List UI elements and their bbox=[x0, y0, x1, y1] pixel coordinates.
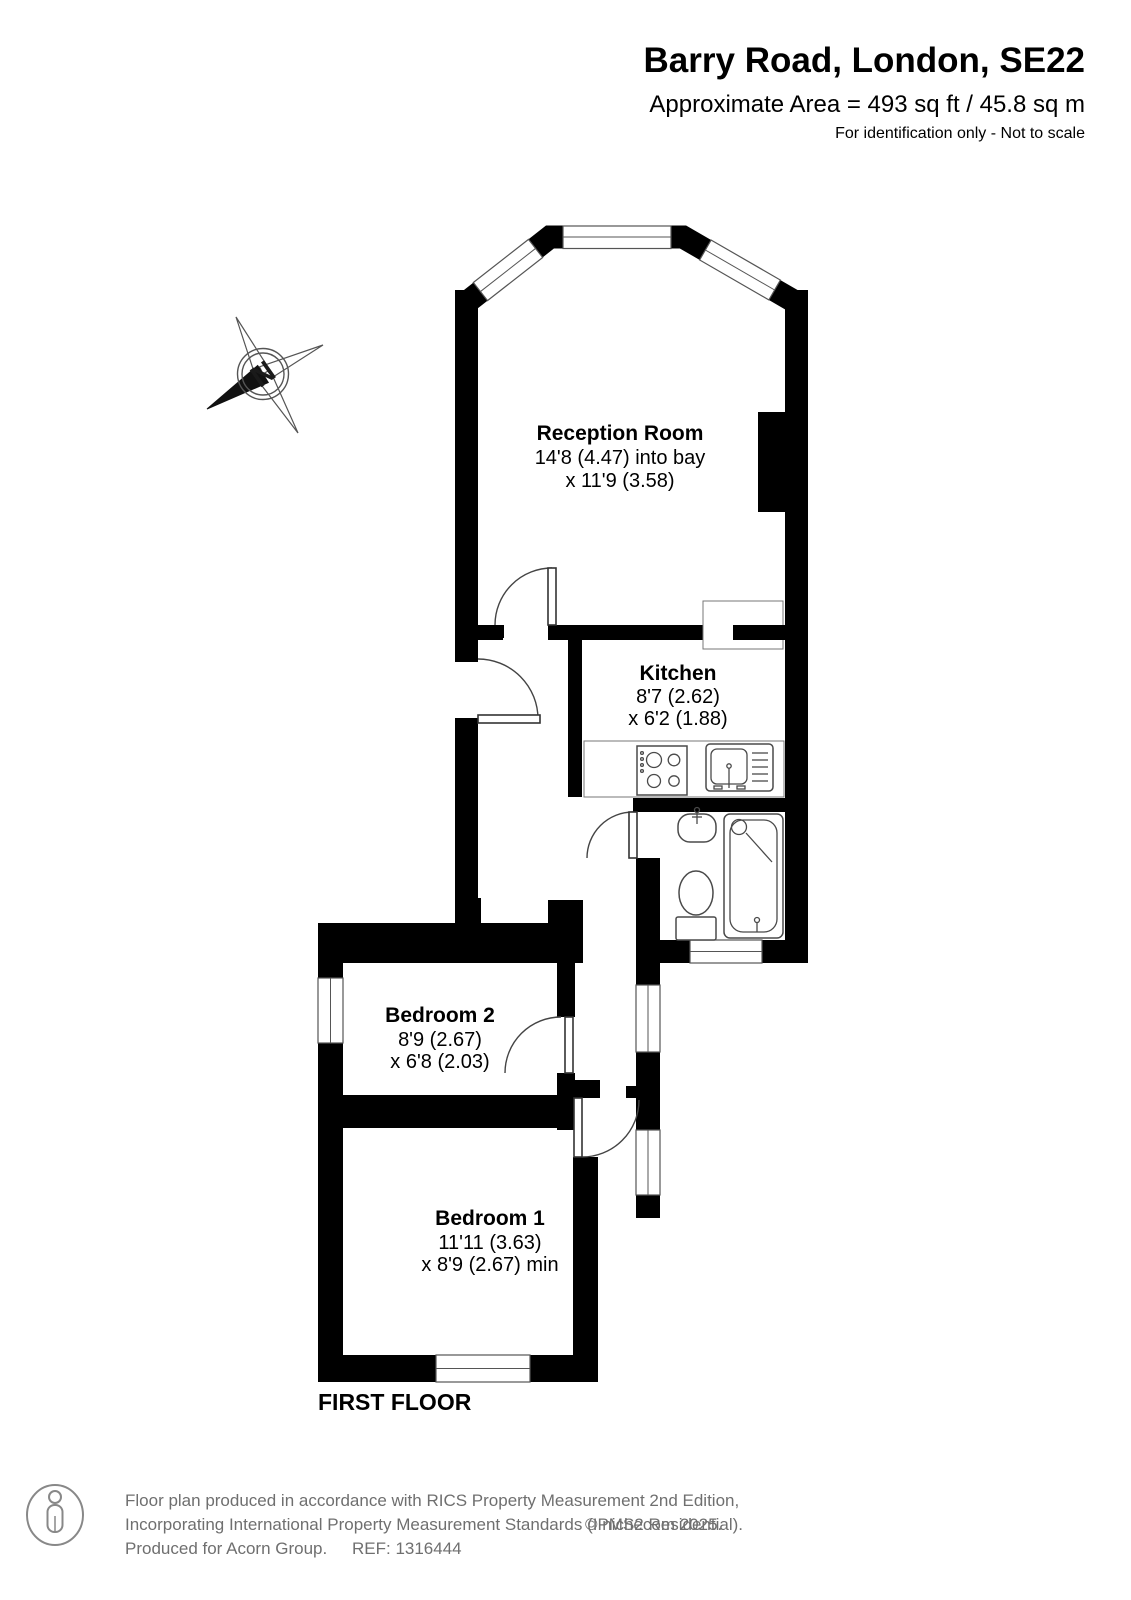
bathtub-icon bbox=[724, 814, 783, 938]
room-dim2: x 11'9 (3.58) bbox=[565, 470, 674, 492]
bedroom2-window bbox=[318, 978, 343, 1043]
wall bbox=[455, 290, 478, 662]
bedroom2-door bbox=[505, 1017, 573, 1073]
wall bbox=[557, 963, 575, 1017]
page-title: Barry Road, London, SE22 bbox=[644, 41, 1085, 80]
bathroom-window bbox=[690, 940, 762, 963]
wall bbox=[575, 1080, 600, 1098]
door-stop bbox=[495, 625, 504, 638]
footer-copyright: © nichecom 2025. bbox=[585, 1515, 722, 1534]
area-text: Approximate Area = 493 sq ft / 45.8 sq m bbox=[649, 91, 1085, 118]
landing-window-lower bbox=[636, 1130, 660, 1195]
kitchen-label: Kitchen 8'7 (2.62) x 6'2 (1.88) bbox=[628, 662, 727, 730]
bay-window-left bbox=[473, 239, 542, 300]
bay-window-right bbox=[700, 240, 781, 300]
kitchen-fixtures bbox=[584, 741, 784, 797]
footer-line1: Floor plan produced in accordance with R… bbox=[125, 1491, 739, 1510]
room-name: Bedroom 1 bbox=[435, 1207, 545, 1230]
room-dim1: 14'8 (4.47) into bay bbox=[535, 447, 706, 469]
floor-title: FIRST FLOOR bbox=[318, 1389, 472, 1415]
wall bbox=[636, 1195, 660, 1218]
bedroom1-door bbox=[574, 1098, 639, 1157]
wall bbox=[318, 1095, 575, 1128]
bedroom2-label: Bedroom 2 8'9 (2.67) x 6'8 (2.03) bbox=[385, 1004, 495, 1073]
bay-window-top bbox=[563, 226, 671, 249]
bedroom1-label: Bedroom 1 11'11 (3.63) x 8'9 (2.67) min bbox=[421, 1207, 558, 1276]
wall bbox=[568, 637, 582, 797]
door-stop bbox=[626, 1086, 636, 1098]
entrance-door bbox=[478, 659, 540, 723]
compass-rose-icon: N bbox=[207, 317, 323, 433]
room-dim1: 8'7 (2.62) bbox=[636, 686, 720, 708]
toilet-icon bbox=[676, 871, 716, 940]
room-name: Kitchen bbox=[639, 662, 716, 685]
person-scale-icon bbox=[27, 1485, 83, 1545]
room-name: Bedroom 2 bbox=[385, 1004, 495, 1027]
footer: Floor plan produced in accordance with R… bbox=[27, 1485, 743, 1558]
basin-icon bbox=[678, 808, 716, 843]
wall bbox=[633, 798, 808, 812]
room-dim1: 8'9 (2.67) bbox=[398, 1029, 482, 1051]
wall bbox=[785, 290, 808, 963]
disclaimer-text: For identification only - Not to scale bbox=[835, 125, 1085, 142]
reception-door bbox=[495, 568, 556, 625]
bedroom1-window bbox=[436, 1355, 530, 1382]
walls-layer bbox=[318, 237, 808, 1382]
wall bbox=[636, 858, 660, 940]
bathroom-fixtures bbox=[676, 808, 783, 941]
wall bbox=[636, 1052, 660, 1098]
sink-icon bbox=[706, 744, 773, 791]
wall bbox=[733, 625, 785, 640]
hob-icon bbox=[637, 746, 687, 795]
wall bbox=[573, 1157, 598, 1382]
landing-window-upper bbox=[636, 985, 660, 1052]
footer-ref: REF: 1316444 bbox=[352, 1539, 462, 1558]
reception-room-label: Reception Room 14'8 (4.47) into bay x 11… bbox=[535, 422, 706, 492]
doors-layer bbox=[478, 568, 639, 1157]
footer-line3: Produced for Acorn Group. bbox=[125, 1539, 327, 1558]
chimney-breast bbox=[758, 412, 808, 512]
room-dim1: 11'11 (3.63) bbox=[438, 1232, 541, 1254]
room-name: Reception Room bbox=[537, 422, 704, 445]
wall bbox=[636, 963, 660, 985]
room-dim2: x 6'8 (2.03) bbox=[390, 1051, 489, 1073]
floorplan-page: Barry Road, London, SE22 Approximate Are… bbox=[0, 0, 1131, 1600]
room-labels: Reception Room 14'8 (4.47) into bay x 11… bbox=[385, 422, 728, 1276]
room-dim2: x 8'9 (2.67) min bbox=[421, 1254, 558, 1276]
header: Barry Road, London, SE22 Approximate Are… bbox=[644, 41, 1086, 142]
bathroom-door bbox=[587, 812, 637, 858]
wall bbox=[318, 923, 575, 963]
floorplan-canvas: Barry Road, London, SE22 Approximate Are… bbox=[0, 0, 1131, 1600]
room-dim2: x 6'2 (1.88) bbox=[628, 708, 727, 730]
